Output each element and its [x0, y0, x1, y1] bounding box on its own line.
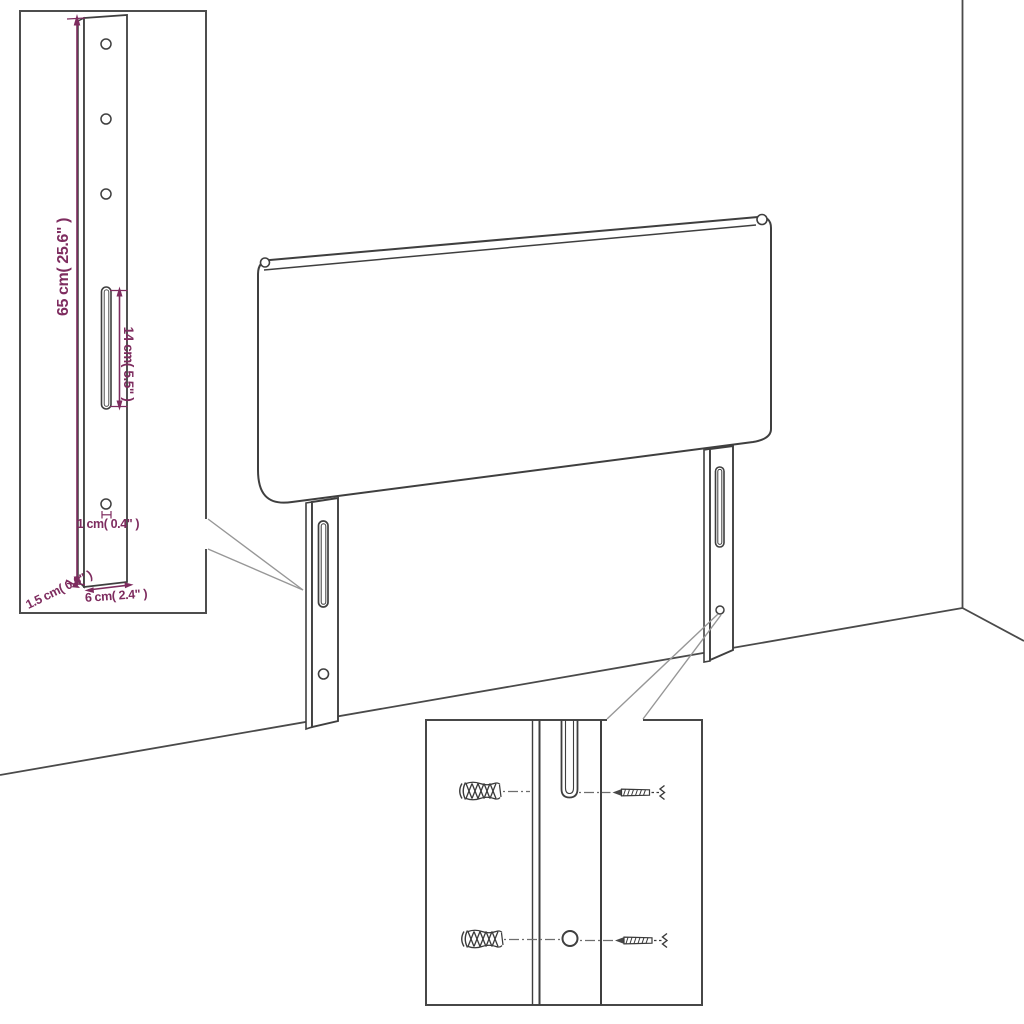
- wall-plug-anchor-top: [460, 782, 501, 800]
- inset-mounting-box: [426, 720, 702, 1005]
- headboard-right-leg: [704, 446, 733, 662]
- headboard-left-leg: [306, 498, 338, 729]
- panel-outline: [258, 217, 771, 503]
- inset-leg-slot: [102, 287, 112, 409]
- headboard-panel: [258, 215, 771, 503]
- inset-mount-leg: [533, 720, 602, 1005]
- diagram-artwork: [0, 0, 1024, 1024]
- mount-slot: [562, 720, 578, 798]
- right-leg-hole: [716, 606, 724, 614]
- floor-line-left: [0, 608, 963, 775]
- product-diagram: 65 cm( 25.6" ) 14 cm( 5.5" ) 1 cm( 0.4" …: [0, 0, 1024, 1024]
- screw-bottom: [615, 934, 667, 948]
- alignment-dashes: [503, 792, 613, 941]
- right-leg-slot: [716, 467, 725, 547]
- dim-label-hole-diameter: 1 cm( 0.4" ): [77, 518, 139, 531]
- panel-top-right-cap: [757, 215, 767, 225]
- inset-leg-small-hole: [101, 499, 111, 509]
- callout-left-leg: [208, 519, 303, 590]
- dim-label-leg-height: 65 cm( 25.6" ): [56, 218, 72, 316]
- inset-leg-hole-3: [101, 189, 111, 199]
- left-leg-slot: [319, 521, 329, 607]
- mount-slot-inner: [566, 720, 574, 794]
- screw-top: [613, 786, 665, 800]
- dim-label-slot-length: 14 cm( 5.5" ): [121, 327, 135, 402]
- inset-bottom-border: [426, 720, 702, 1005]
- inset-leg-hole-1: [101, 39, 111, 49]
- panel-top-left-cap: [261, 258, 270, 267]
- left-leg-hole: [319, 669, 329, 679]
- mount-hole: [563, 931, 578, 946]
- wall-plug-anchor-bottom: [462, 930, 503, 948]
- inset-leg-hole-2: [101, 114, 111, 124]
- floor-line-right: [963, 608, 1024, 641]
